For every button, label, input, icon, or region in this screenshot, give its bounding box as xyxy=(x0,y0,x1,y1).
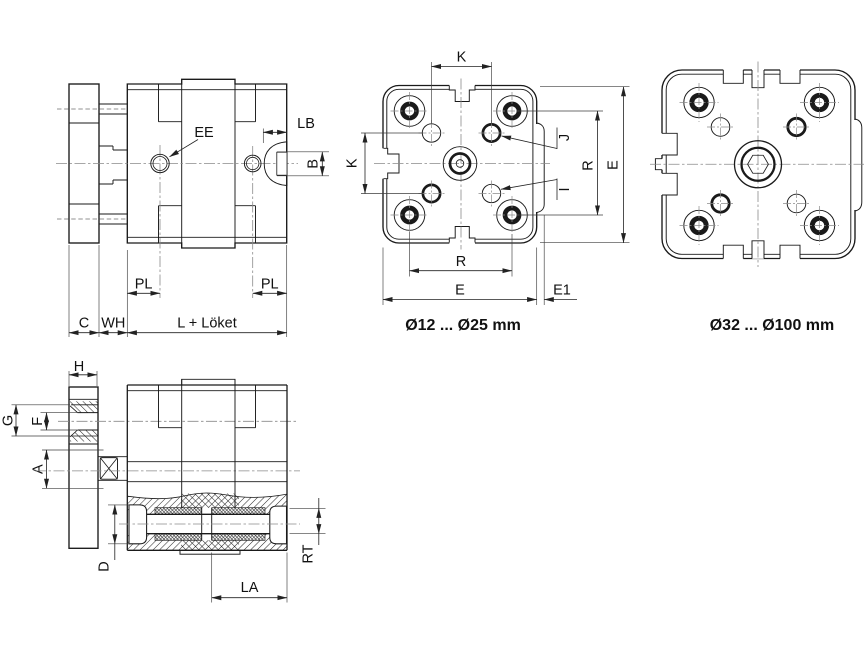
dim-label-ee: EE xyxy=(194,125,214,141)
thread-zone xyxy=(212,508,265,515)
thread-zone xyxy=(155,534,202,541)
dim-label-h: H xyxy=(74,359,84,375)
dim-label-la: LA xyxy=(241,580,259,596)
front-view-small-sizes: K K J I R E R E E1 Ø12 ... Ø25 mm xyxy=(345,50,630,335)
dim-label-k-top: K xyxy=(457,50,467,66)
dim-label-e-right: E xyxy=(606,160,622,170)
dim-label-wh: WH xyxy=(101,316,125,332)
dim-label-r-bottom: R xyxy=(456,254,466,270)
dim-label-c: C xyxy=(79,316,89,332)
dim-label-d: D xyxy=(97,561,113,571)
technical-drawing-canvas: EE LB B PL PL C WH L + Löket xyxy=(0,0,868,653)
dim-label-l-plus-stroke: L + Löket xyxy=(177,316,237,332)
dim-label-j: J xyxy=(557,134,573,141)
dim-label-pl-left: PL xyxy=(135,277,153,293)
dim-label-lb: LB xyxy=(297,116,315,132)
cylinder-dimension-drawing: EE LB B PL PL C WH L + Löket xyxy=(0,0,868,653)
dim-label-rt: RT xyxy=(301,544,317,563)
dim-label-i: I xyxy=(557,187,573,191)
dim-label-e-bottom: E xyxy=(455,283,465,299)
hole-end-right xyxy=(270,506,287,544)
front-view-large-sizes: Ø32 ... Ø100 mm xyxy=(650,62,864,335)
caption-small-sizes: Ø12 ... Ø25 mm xyxy=(405,317,521,334)
dim-label-e1: E1 xyxy=(553,283,571,299)
dim-label-pl-right: PL xyxy=(261,277,279,293)
dim-label-g: G xyxy=(1,415,17,426)
thread-zone xyxy=(155,508,202,515)
dim-label-k-left: K xyxy=(345,158,361,168)
dim-label-r-right: R xyxy=(581,160,597,170)
dim-label-f: F xyxy=(30,417,46,426)
side-view: EE LB B PL PL C WH L + Löket xyxy=(56,79,329,337)
dim-label-a: A xyxy=(31,464,47,474)
thread-zone xyxy=(212,534,265,541)
caption-large-sizes: Ø32 ... Ø100 mm xyxy=(710,317,835,334)
sectional-view: H G F A xyxy=(1,359,326,603)
dim-label-b: B xyxy=(306,159,322,169)
